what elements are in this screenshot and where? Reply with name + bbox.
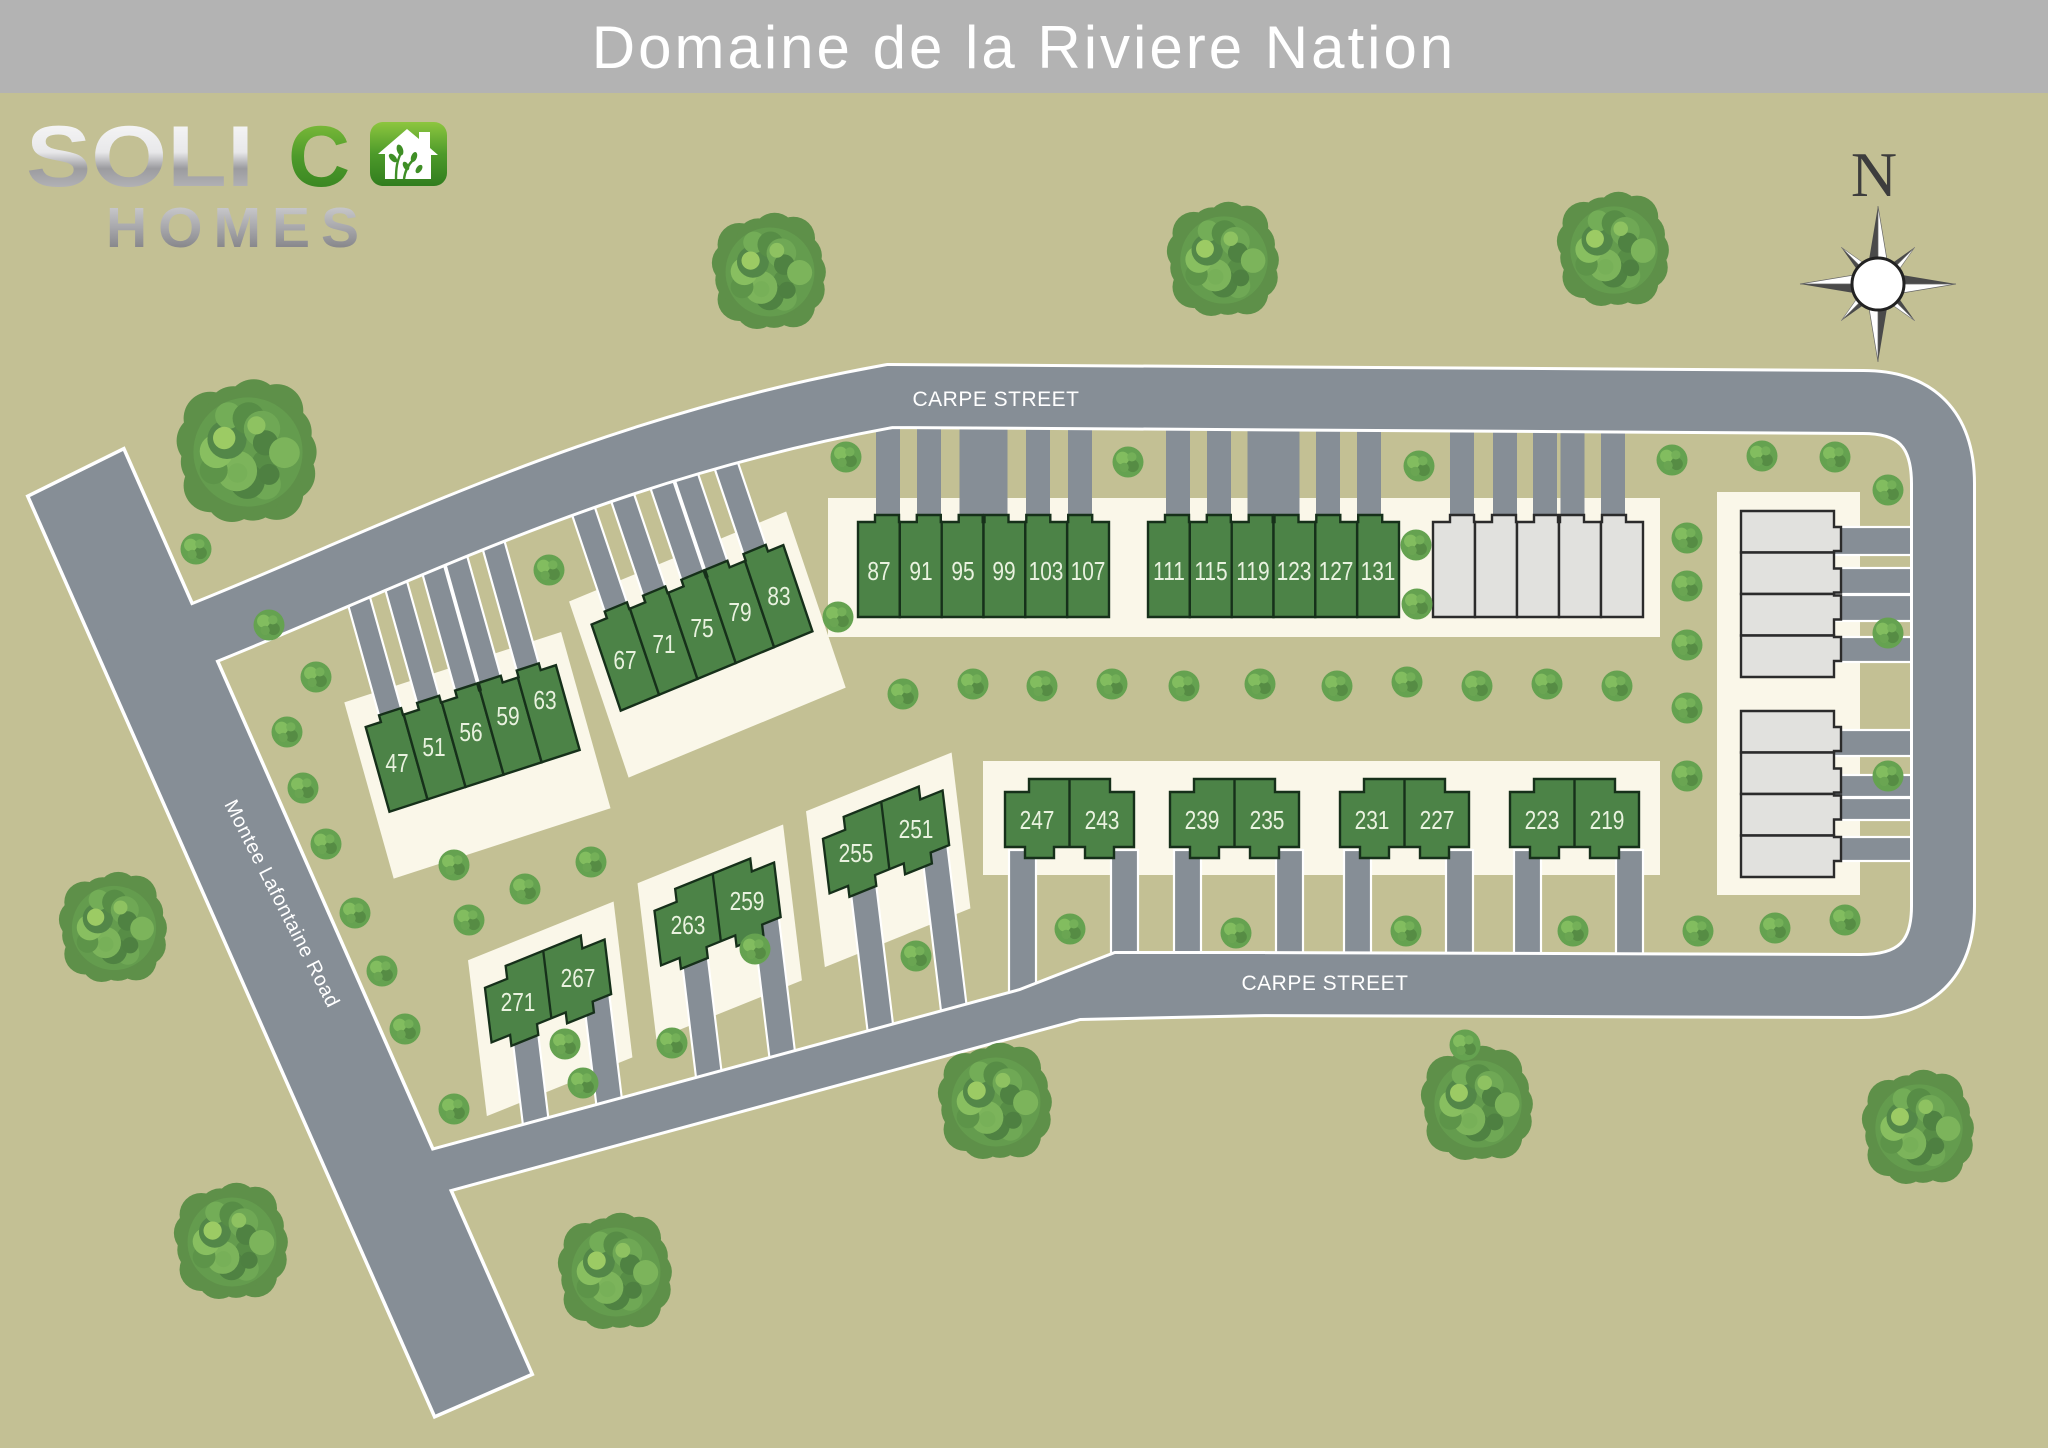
svg-text:99: 99 bbox=[992, 557, 1015, 585]
svg-text:111: 111 bbox=[1153, 557, 1185, 585]
svg-text:CARPE STREET: CARPE STREET bbox=[912, 388, 1079, 411]
svg-text:239: 239 bbox=[1185, 806, 1220, 834]
svg-text:71: 71 bbox=[652, 630, 675, 658]
svg-text:87: 87 bbox=[867, 557, 890, 585]
svg-text:235: 235 bbox=[1250, 806, 1285, 834]
svg-text:131: 131 bbox=[1361, 557, 1396, 585]
svg-text:267: 267 bbox=[561, 964, 596, 992]
svg-text:251: 251 bbox=[899, 815, 934, 843]
svg-text:91: 91 bbox=[909, 557, 932, 585]
svg-text:HOMES: HOMES bbox=[106, 196, 370, 260]
svg-text:243: 243 bbox=[1085, 806, 1120, 834]
svg-text:N: N bbox=[1851, 139, 1897, 210]
svg-text:59: 59 bbox=[496, 702, 519, 730]
svg-text:227: 227 bbox=[1420, 806, 1455, 834]
svg-text:103: 103 bbox=[1029, 557, 1064, 585]
svg-text:271: 271 bbox=[501, 988, 536, 1016]
svg-text:47: 47 bbox=[385, 749, 408, 777]
svg-text:115: 115 bbox=[1194, 557, 1227, 585]
svg-text:123: 123 bbox=[1277, 557, 1312, 585]
svg-text:219: 219 bbox=[1590, 806, 1625, 834]
svg-text:67: 67 bbox=[613, 646, 636, 674]
svg-text:Domaine de la Riviere Nation: Domaine de la Riviere Nation bbox=[592, 14, 1456, 81]
svg-text:83: 83 bbox=[767, 582, 790, 610]
svg-text:56: 56 bbox=[459, 718, 482, 746]
svg-text:255: 255 bbox=[839, 839, 874, 867]
svg-text:C: C bbox=[288, 109, 350, 205]
svg-text:263: 263 bbox=[671, 911, 706, 939]
svg-text:75: 75 bbox=[690, 614, 713, 642]
svg-text:247: 247 bbox=[1020, 806, 1055, 834]
svg-text:223: 223 bbox=[1525, 806, 1560, 834]
svg-text:51: 51 bbox=[422, 733, 445, 761]
svg-text:107: 107 bbox=[1071, 557, 1106, 585]
svg-text:119: 119 bbox=[1236, 557, 1269, 585]
svg-text:259: 259 bbox=[730, 887, 765, 915]
svg-text:95: 95 bbox=[951, 557, 974, 585]
svg-text:231: 231 bbox=[1355, 806, 1390, 834]
svg-text:63: 63 bbox=[533, 686, 556, 714]
svg-text:CARPE STREET: CARPE STREET bbox=[1241, 972, 1408, 995]
svg-text:127: 127 bbox=[1319, 557, 1354, 585]
svg-text:SOLI: SOLI bbox=[26, 109, 254, 205]
svg-text:79: 79 bbox=[728, 598, 751, 626]
